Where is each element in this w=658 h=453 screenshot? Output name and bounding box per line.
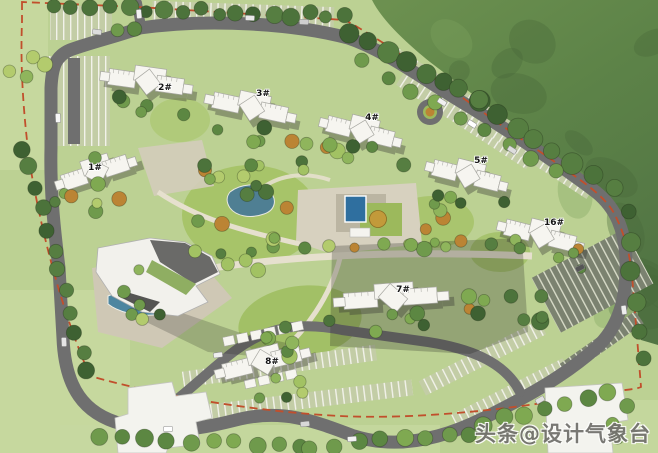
tree	[280, 201, 293, 214]
car	[55, 113, 60, 122]
tree	[227, 5, 243, 21]
tree	[319, 11, 331, 23]
tree	[281, 392, 291, 402]
tree	[20, 157, 37, 174]
tree	[580, 390, 597, 407]
tree	[176, 5, 190, 19]
tree	[568, 248, 578, 258]
tree	[39, 223, 54, 238]
tree	[192, 215, 205, 228]
axis-pavilion	[350, 228, 370, 237]
tree	[471, 306, 486, 321]
tree	[535, 290, 548, 303]
tree	[378, 42, 400, 64]
building-label: 2#	[158, 83, 172, 93]
tree	[369, 325, 382, 338]
tree	[155, 1, 173, 19]
tree	[91, 177, 106, 192]
site-plan-rendering: 1#2#3#4#5#16#7#8# 头条@设计气象台	[0, 0, 658, 453]
watermark-text: 头条@设计气象台	[475, 418, 651, 448]
car	[61, 337, 66, 346]
tree	[49, 261, 64, 276]
tree	[158, 433, 174, 449]
car	[300, 421, 309, 427]
tree	[20, 70, 33, 83]
tree	[117, 285, 130, 298]
tree	[272, 437, 287, 452]
tree	[47, 0, 61, 13]
tree	[627, 293, 646, 312]
tree	[294, 375, 306, 387]
tree	[285, 134, 299, 148]
site-plan-canvas: 1#2#3#4#5#16#7#8#	[0, 0, 658, 453]
tree	[403, 84, 419, 100]
tree	[397, 51, 417, 71]
tree	[207, 434, 222, 449]
building-label: 4#	[365, 113, 379, 123]
tree	[36, 200, 52, 216]
building-label: 5#	[474, 156, 488, 166]
tree	[60, 283, 74, 297]
car	[136, 9, 142, 18]
car	[213, 352, 223, 358]
tree	[239, 254, 252, 267]
tree	[397, 158, 411, 172]
tree	[378, 238, 391, 251]
tree	[92, 198, 102, 208]
car	[245, 15, 254, 20]
axis-pool	[345, 196, 366, 222]
tree	[78, 362, 95, 379]
tree	[455, 235, 467, 247]
tree	[115, 429, 130, 444]
tree	[382, 72, 395, 85]
tree	[449, 79, 467, 97]
tree	[134, 299, 145, 310]
tree	[65, 190, 78, 203]
tree	[112, 90, 126, 104]
tree	[621, 204, 636, 219]
tree	[63, 306, 77, 320]
tree	[417, 241, 433, 257]
tree	[461, 289, 476, 304]
tree	[636, 351, 651, 366]
tree	[91, 428, 108, 445]
tree	[485, 238, 498, 251]
car	[163, 426, 172, 431]
tree	[3, 65, 16, 78]
tree	[417, 64, 436, 83]
tree	[524, 130, 543, 149]
tree	[245, 159, 258, 172]
building-label: 1#	[88, 163, 102, 173]
tree	[300, 137, 313, 150]
tree	[251, 180, 262, 191]
lowrise-unit	[223, 335, 236, 346]
tree	[324, 315, 336, 327]
tree	[557, 397, 572, 412]
tree	[257, 120, 272, 135]
tree	[366, 141, 377, 152]
tree	[543, 143, 559, 159]
tree	[553, 252, 564, 263]
tree	[111, 24, 124, 37]
tree	[261, 332, 273, 344]
tree	[63, 0, 77, 14]
tree	[632, 324, 647, 339]
tree	[178, 108, 190, 120]
tree	[136, 313, 149, 326]
tree	[266, 6, 283, 23]
tree	[584, 165, 603, 184]
tree	[269, 233, 280, 244]
tree	[249, 437, 266, 453]
tree	[441, 242, 451, 252]
tree	[251, 263, 266, 278]
tree	[215, 216, 230, 231]
tree	[183, 435, 200, 452]
tree	[478, 123, 491, 136]
tree	[282, 8, 300, 26]
building-label: 7#	[396, 285, 410, 295]
tree	[346, 140, 360, 154]
tree	[323, 138, 338, 153]
tree	[499, 196, 510, 207]
tree	[339, 24, 359, 44]
tree	[127, 22, 142, 37]
tree	[299, 242, 311, 254]
tree	[247, 135, 261, 149]
feature-tree	[370, 211, 387, 228]
tree	[397, 429, 414, 446]
tree	[536, 311, 548, 323]
car	[347, 436, 356, 442]
tree	[621, 261, 641, 281]
tree	[514, 242, 526, 254]
tree	[28, 181, 42, 195]
tree	[454, 112, 467, 125]
car	[92, 29, 102, 35]
tree	[561, 153, 583, 175]
building-label: 3#	[256, 89, 270, 99]
tree	[355, 53, 369, 67]
tree	[387, 309, 398, 320]
tree	[154, 309, 165, 320]
tree	[418, 319, 430, 331]
tree	[226, 434, 240, 448]
tree	[298, 165, 309, 176]
tree	[326, 439, 342, 453]
tree	[337, 7, 352, 22]
tree	[103, 0, 117, 13]
tree	[198, 159, 212, 173]
car	[621, 305, 627, 315]
lowrise-unit	[236, 332, 249, 343]
tree	[302, 441, 317, 453]
parking-west-aisle	[68, 58, 80, 144]
tree	[538, 401, 553, 416]
tree	[216, 249, 226, 259]
tree	[221, 258, 234, 271]
tree	[606, 179, 623, 196]
tree	[194, 1, 208, 15]
tree	[189, 245, 202, 258]
tree	[599, 384, 616, 401]
tree	[405, 238, 418, 251]
tree	[77, 346, 91, 360]
tree	[418, 431, 433, 446]
tree	[445, 191, 457, 203]
tree	[410, 306, 425, 321]
lowrise-unit	[291, 321, 304, 332]
tree	[136, 429, 154, 447]
tree	[297, 387, 308, 398]
tree	[504, 289, 518, 303]
tree	[549, 164, 563, 178]
tree	[620, 399, 635, 414]
car	[299, 19, 308, 24]
tree	[82, 0, 98, 16]
tree	[342, 152, 354, 164]
building-label: 16#	[544, 218, 564, 228]
tree	[134, 265, 144, 275]
tree	[442, 427, 457, 442]
tree	[13, 141, 30, 158]
tree	[50, 197, 61, 208]
tree	[455, 198, 466, 209]
tree	[523, 151, 539, 167]
building-label: 8#	[265, 357, 279, 367]
tree	[478, 294, 490, 306]
tree	[271, 373, 281, 383]
tree	[303, 5, 318, 20]
tree	[432, 190, 444, 202]
tree	[212, 125, 223, 136]
tree	[622, 233, 641, 252]
tree	[323, 240, 336, 253]
tree	[518, 314, 530, 326]
tree	[204, 174, 215, 185]
tree	[254, 393, 264, 403]
tree	[470, 91, 488, 109]
tree	[279, 321, 291, 333]
tree	[112, 192, 127, 207]
tree	[237, 170, 250, 183]
tree	[359, 32, 377, 50]
tree	[286, 336, 299, 349]
tree	[136, 107, 147, 118]
tree	[66, 325, 81, 340]
tree	[420, 224, 431, 235]
tree	[350, 243, 359, 252]
tree	[487, 104, 507, 124]
lowrise-unit	[258, 375, 271, 386]
tree	[26, 51, 39, 64]
tree	[214, 8, 226, 20]
tree	[372, 431, 388, 447]
tree	[49, 244, 63, 258]
